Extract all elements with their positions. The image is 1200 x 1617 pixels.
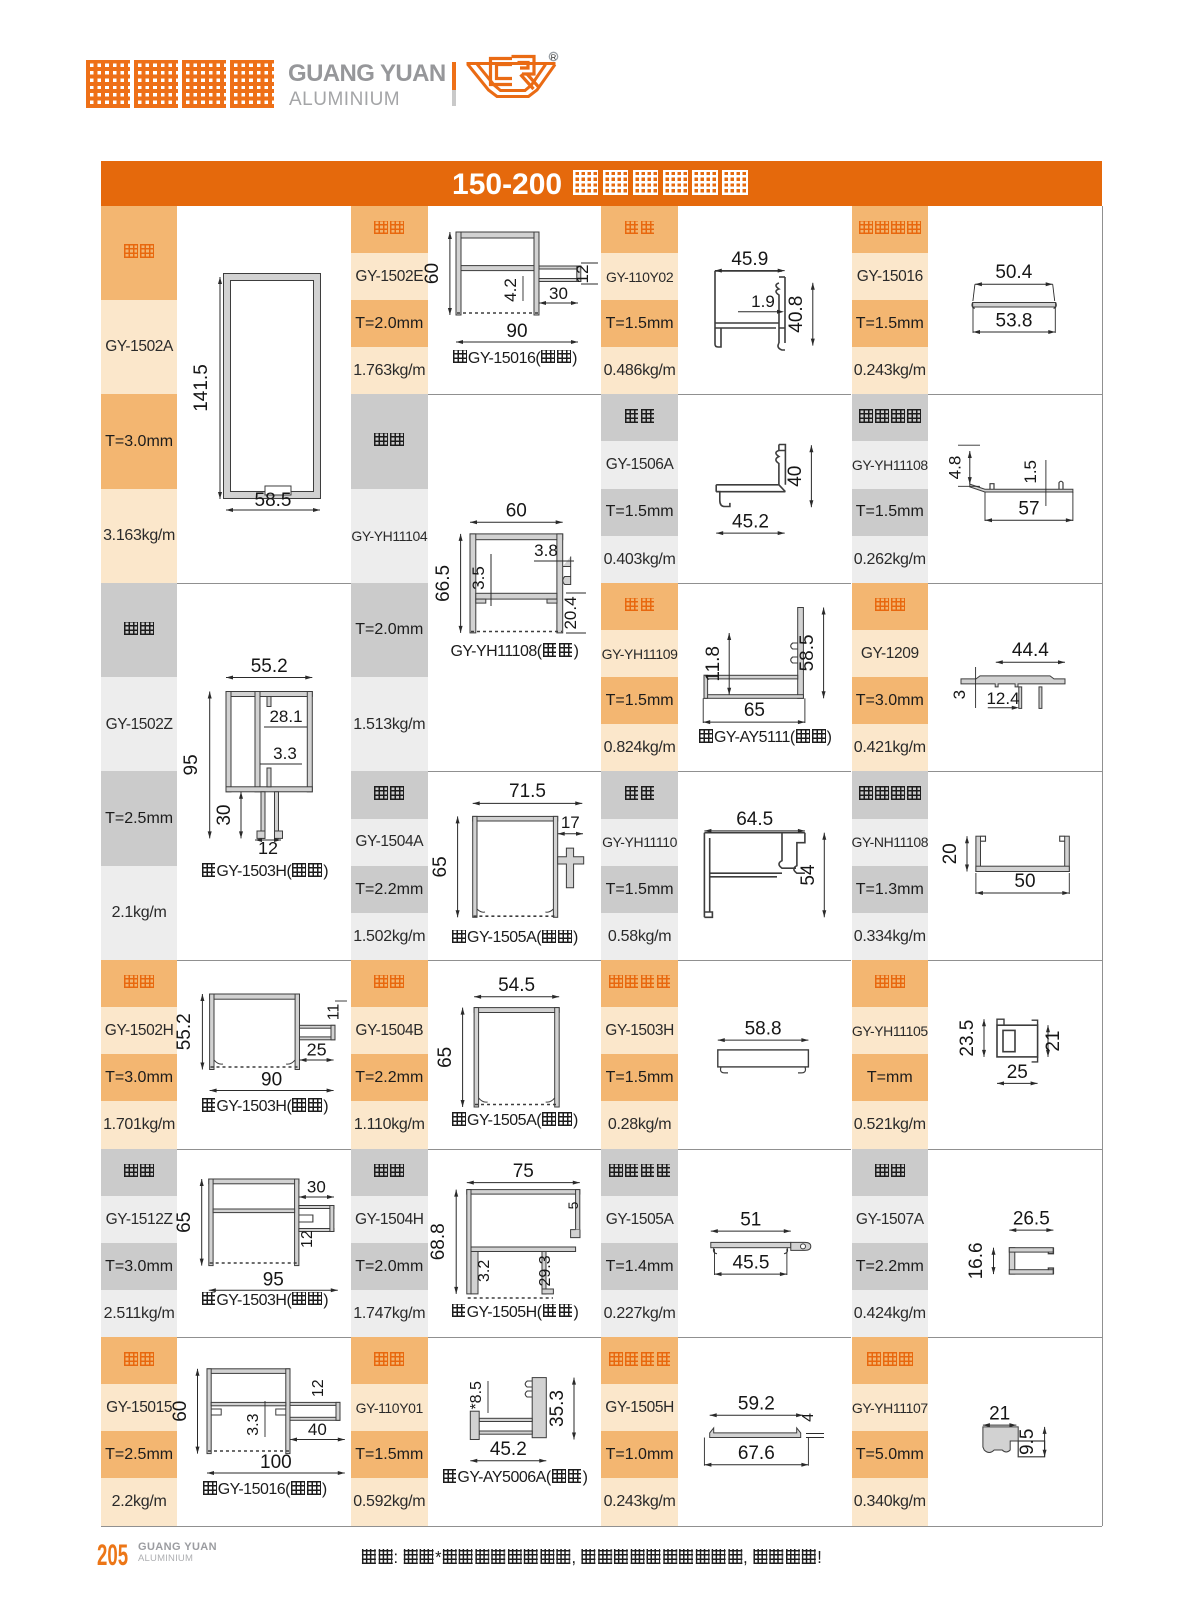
svg-text:95: 95 <box>263 1269 284 1290</box>
svg-text:45.2: 45.2 <box>732 512 769 533</box>
svg-text:90: 90 <box>506 321 527 342</box>
svg-text:29.3: 29.3 <box>536 1255 553 1286</box>
svg-text:3.3: 3.3 <box>245 1413 262 1435</box>
svg-text:60: 60 <box>170 1401 191 1422</box>
svg-text:58.8: 58.8 <box>745 1019 782 1040</box>
svg-text:66.5: 66.5 <box>433 565 454 602</box>
svg-text:65: 65 <box>430 857 451 878</box>
svg-text:50: 50 <box>1015 871 1036 892</box>
svg-text:50.4: 50.4 <box>995 262 1032 283</box>
svg-text:12.4: 12.4 <box>987 689 1020 708</box>
svg-text:12: 12 <box>258 838 278 858</box>
svg-text:1.5: 1.5 <box>1021 460 1040 484</box>
svg-text:16.6: 16.6 <box>966 1242 987 1279</box>
svg-text:65: 65 <box>174 1211 195 1232</box>
svg-text:100: 100 <box>260 1452 292 1473</box>
svg-text:53.8: 53.8 <box>996 310 1033 331</box>
svg-text:75: 75 <box>512 1161 533 1182</box>
svg-text:21: 21 <box>989 1404 1010 1425</box>
svg-text:3: 3 <box>950 690 969 699</box>
svg-text:R: R <box>551 53 557 62</box>
svg-text:3.3: 3.3 <box>274 744 298 763</box>
svg-text:4.8: 4.8 <box>945 456 964 480</box>
svg-text:9.5: 9.5 <box>1017 1429 1038 1455</box>
svg-text:45.2: 45.2 <box>489 1439 526 1460</box>
svg-text:26.5: 26.5 <box>1013 1208 1050 1229</box>
svg-text:4: 4 <box>800 1413 817 1422</box>
svg-text:30: 30 <box>549 284 568 303</box>
svg-text:3.2: 3.2 <box>476 1259 493 1281</box>
svg-text:141.5: 141.5 <box>191 364 212 412</box>
svg-text:12: 12 <box>299 1230 316 1248</box>
svg-text:44.4: 44.4 <box>1012 640 1049 661</box>
svg-text:12: 12 <box>310 1379 327 1397</box>
svg-text:5: 5 <box>565 1201 581 1209</box>
svg-text:23.5: 23.5 <box>957 1020 978 1057</box>
svg-text:12: 12 <box>573 264 592 283</box>
svg-text:51: 51 <box>740 1209 761 1230</box>
svg-text:60: 60 <box>505 501 526 522</box>
svg-text:68.8: 68.8 <box>428 1223 449 1260</box>
svg-text:65: 65 <box>435 1047 456 1068</box>
svg-text:28.1: 28.1 <box>270 707 303 726</box>
svg-text:4.2: 4.2 <box>501 278 520 302</box>
svg-text:30: 30 <box>214 804 235 825</box>
svg-text:25: 25 <box>307 1039 327 1059</box>
svg-text:40: 40 <box>308 1420 327 1439</box>
svg-text:40: 40 <box>785 466 806 487</box>
svg-text:11: 11 <box>326 1004 343 1021</box>
svg-text:58.5: 58.5 <box>797 634 818 671</box>
svg-text:45.5: 45.5 <box>732 1252 769 1273</box>
svg-text:21: 21 <box>1043 1031 1064 1052</box>
svg-text:60: 60 <box>422 263 443 284</box>
svg-text:45.9: 45.9 <box>731 249 768 270</box>
svg-text:64.5: 64.5 <box>736 809 773 830</box>
svg-text:11.8: 11.8 <box>703 646 724 682</box>
svg-text:67.6: 67.6 <box>738 1443 775 1464</box>
svg-text:40.8: 40.8 <box>786 296 807 333</box>
svg-text:59.2: 59.2 <box>738 1394 775 1415</box>
svg-text:54: 54 <box>798 865 819 886</box>
svg-text:3.5: 3.5 <box>469 566 488 590</box>
svg-text:58.5: 58.5 <box>255 490 292 511</box>
svg-text:35.3: 35.3 <box>547 1390 568 1427</box>
svg-text:25: 25 <box>1007 1062 1028 1083</box>
svg-text:17: 17 <box>560 813 579 832</box>
svg-text:1.9: 1.9 <box>751 292 775 311</box>
svg-text:20: 20 <box>940 844 961 865</box>
svg-text:65: 65 <box>744 700 765 721</box>
svg-text:90: 90 <box>261 1069 282 1090</box>
svg-text:95: 95 <box>181 754 202 775</box>
svg-text:3.8: 3.8 <box>534 541 558 560</box>
svg-text:54.5: 54.5 <box>498 975 535 996</box>
svg-text:30: 30 <box>307 1177 326 1196</box>
svg-text:57: 57 <box>1019 499 1040 520</box>
svg-text:55.2: 55.2 <box>174 1013 195 1050</box>
svg-text:20.4: 20.4 <box>561 597 580 630</box>
svg-text:71.5: 71.5 <box>509 781 546 802</box>
svg-text:*8.5: *8.5 <box>467 1381 484 1410</box>
svg-text:55.2: 55.2 <box>251 656 288 677</box>
